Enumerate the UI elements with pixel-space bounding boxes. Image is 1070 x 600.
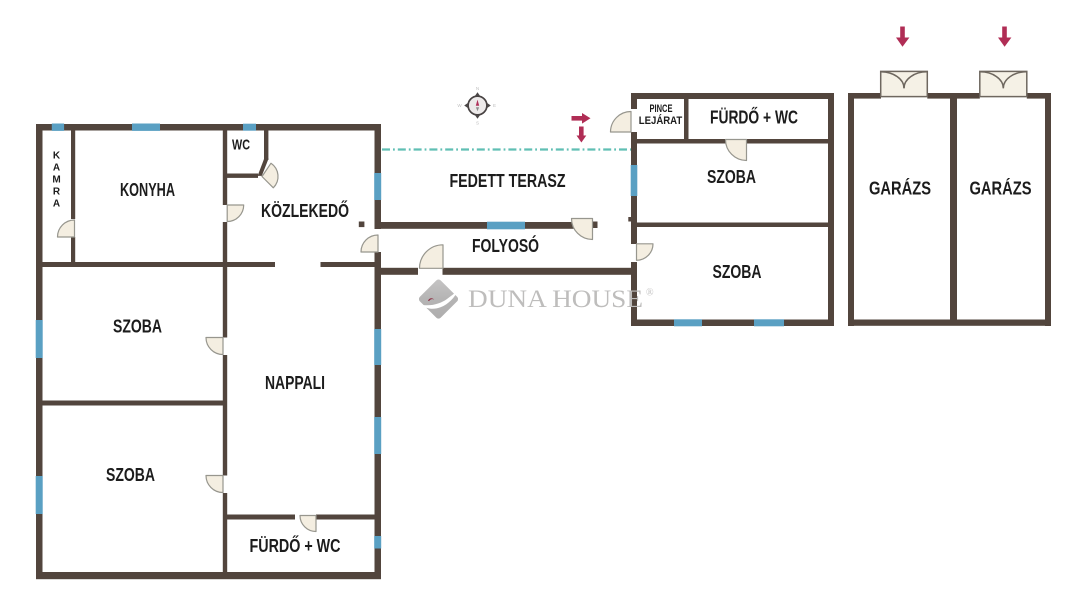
svg-text:SZOBA: SZOBA [713, 262, 762, 282]
svg-text:K: K [53, 151, 61, 162]
svg-text:A: A [53, 199, 60, 210]
svg-text:PINCE: PINCE [650, 103, 673, 115]
svg-text:SZOBA: SZOBA [707, 167, 756, 187]
svg-text:M: M [52, 175, 60, 186]
svg-text:DUNA HOUSE: DUNA HOUSE [468, 284, 643, 313]
svg-text:SZOBA: SZOBA [106, 465, 155, 485]
svg-text:LEJÁRAT: LEJÁRAT [639, 114, 683, 127]
svg-text:WC: WC [232, 137, 250, 154]
svg-text:FÜRDŐ + WC: FÜRDŐ + WC [710, 107, 798, 128]
svg-text:S: S [476, 121, 479, 126]
svg-text:FOLYOSÓ: FOLYOSÓ [472, 235, 539, 256]
svg-text:KÖZLEKEDŐ: KÖZLEKEDŐ [261, 200, 349, 221]
svg-text:N: N [476, 86, 479, 91]
svg-text:FÜRDŐ + WC: FÜRDŐ + WC [250, 535, 341, 556]
svg-text:R: R [53, 187, 61, 198]
svg-text:®: ® [646, 288, 654, 299]
svg-text:GARÁZS: GARÁZS [869, 178, 931, 199]
svg-text:FEDETT TERASZ: FEDETT TERASZ [450, 171, 566, 191]
svg-text:SZOBA: SZOBA [113, 317, 162, 337]
svg-text:KONYHA: KONYHA [120, 180, 175, 200]
svg-text:GARÁZS: GARÁZS [970, 178, 1032, 199]
svg-text:E: E [493, 103, 496, 108]
svg-text:W: W [457, 103, 462, 108]
svg-text:NAPPALI: NAPPALI [265, 373, 325, 393]
svg-text:A: A [53, 163, 60, 174]
